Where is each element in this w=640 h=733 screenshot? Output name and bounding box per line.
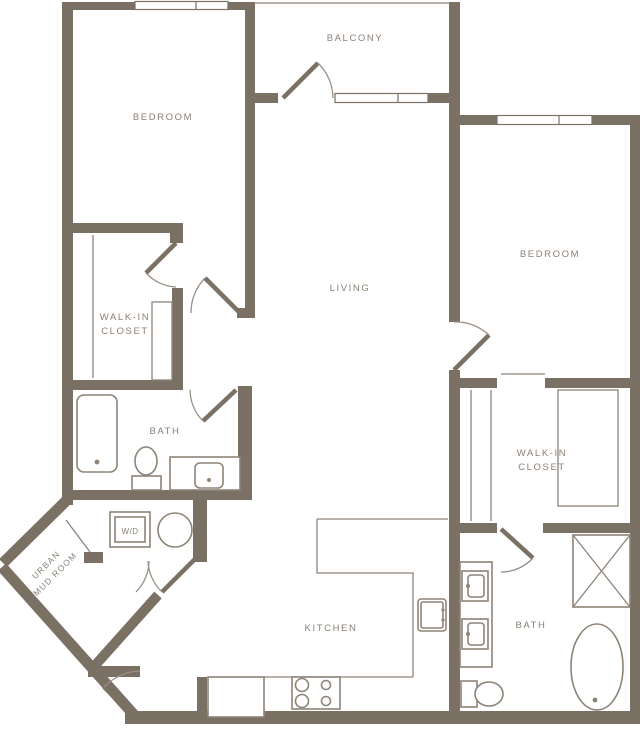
door-living-hall (191, 278, 240, 313)
door-bedroom-left-closet (146, 243, 176, 287)
fixtures (77, 395, 630, 717)
walls (2, 2, 640, 724)
toilet-icon (132, 447, 161, 490)
water-heater-icon (158, 513, 192, 547)
kitchen-sink-icon (418, 599, 446, 631)
window-balcony (335, 94, 428, 103)
door-bath-left (190, 390, 236, 421)
windows (135, 2, 592, 125)
label-living: LIVING (330, 283, 371, 294)
door-laundry-double (136, 559, 195, 592)
floor-plan: BEDROOM BALCONY BEDROOM LIVING WALK-IN C… (0, 0, 640, 733)
window-bedroom-left (135, 2, 228, 10)
freestanding-tub-icon (571, 624, 623, 710)
closet-left-shelf (152, 302, 172, 380)
door-bedroom-right (454, 322, 489, 370)
kitchen-counter-line (264, 519, 448, 677)
floor-plan-page: BEDROOM BALCONY BEDROOM LIVING WALK-IN C… (0, 0, 640, 733)
cabinet-icon (208, 677, 264, 717)
door-balcony (283, 63, 333, 98)
label-bedroom-right: BEDROOM (520, 249, 580, 260)
bathtub-icon (77, 395, 117, 472)
double-sink-vanity-icon (460, 562, 492, 667)
label-bath-left: BATH (149, 426, 180, 437)
window-bedroom-right (497, 116, 592, 125)
label-bedroom-left: BEDROOM (133, 112, 193, 123)
sink-vanity-icon (170, 457, 240, 490)
label-mud-room: URBAN MUD ROOM (22, 541, 79, 598)
toilet-icon-right (461, 681, 503, 707)
mud-room-bench-line (66, 520, 90, 552)
cooktop-icon (292, 677, 340, 709)
label-closet-right-line2: CLOSET (518, 462, 566, 473)
label-kitchen: KITCHEN (305, 623, 358, 634)
label-bath-right: BATH (515, 620, 546, 631)
label-closet-right-line1: WALK-IN (517, 448, 567, 459)
door-bath-right (501, 529, 533, 572)
shower-icon (573, 535, 630, 607)
thin-lines (66, 3, 618, 677)
label-closet-left-line2: CLOSET (101, 326, 149, 337)
label-balcony: BALCONY (327, 33, 384, 44)
label-closet-left-line1: WALK-IN (100, 312, 150, 323)
label-washer-dryer: W/D (121, 527, 138, 536)
